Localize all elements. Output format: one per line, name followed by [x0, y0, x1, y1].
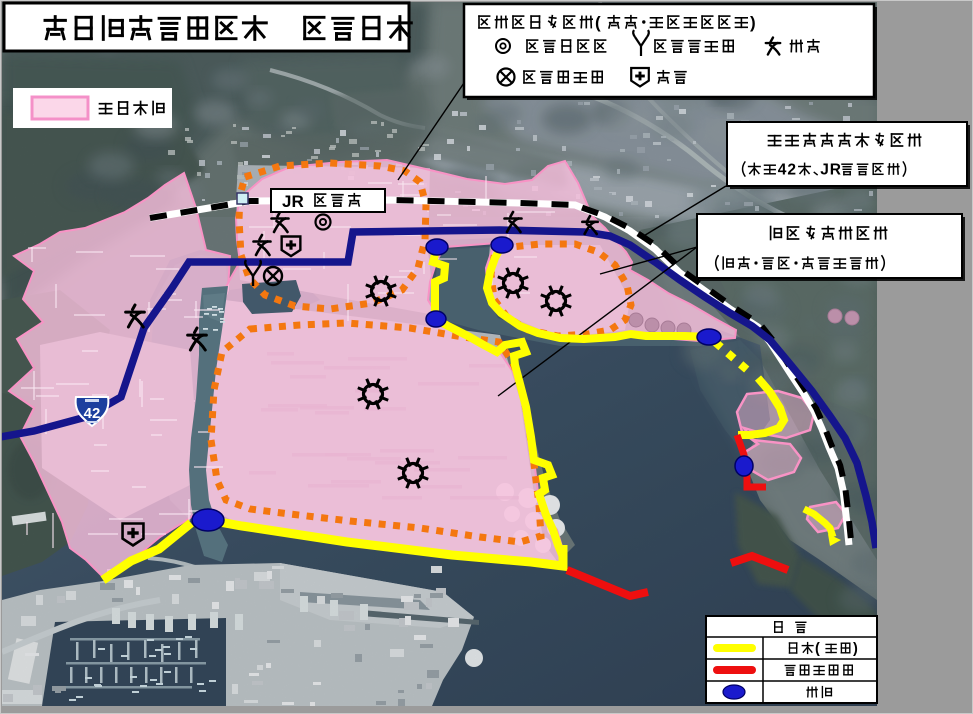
- svg-text:J: J: [820, 162, 829, 179]
- svg-text:2: 2: [787, 162, 796, 179]
- svg-text:(: (: [815, 641, 820, 657]
- svg-text:): ): [750, 13, 756, 32]
- svg-text:): ): [853, 641, 858, 657]
- svg-text:JR: JR: [282, 192, 304, 211]
- svg-text:42: 42: [84, 405, 101, 422]
- svg-text:R: R: [830, 162, 841, 179]
- svg-text:4: 4: [778, 162, 787, 179]
- svg-text:(: (: [595, 13, 601, 32]
